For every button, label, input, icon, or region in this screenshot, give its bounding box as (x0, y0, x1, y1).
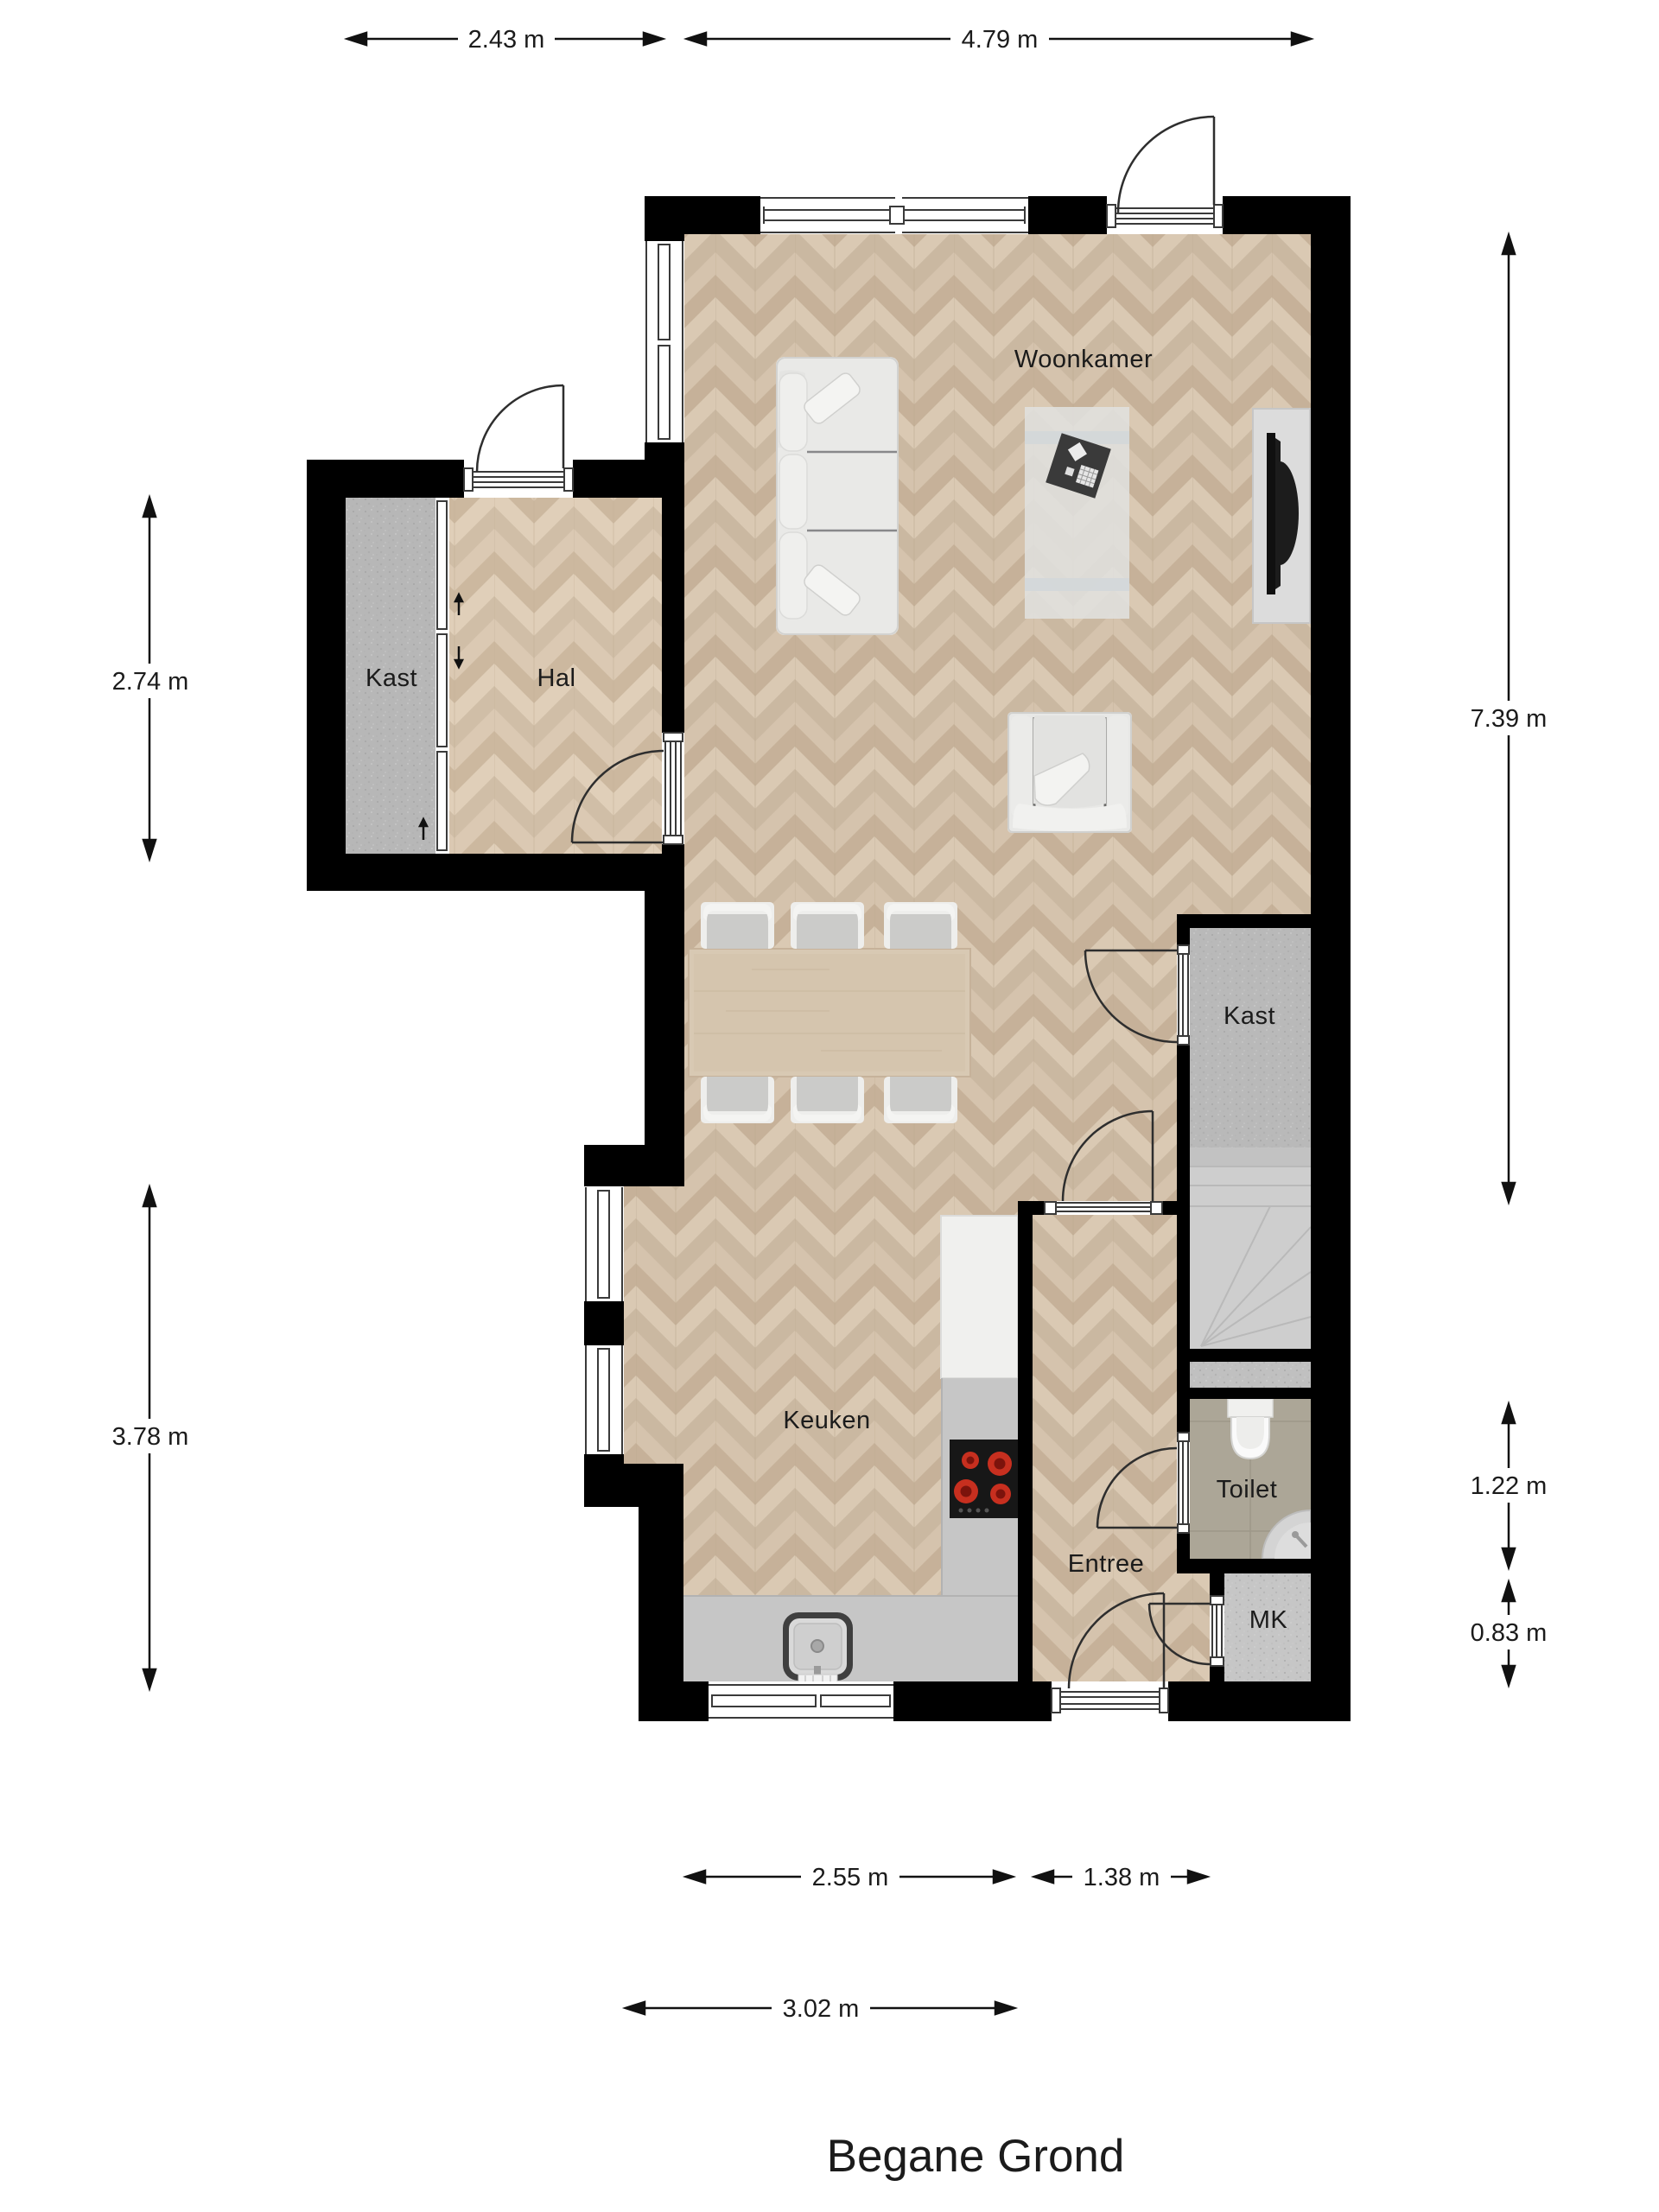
svg-text:3.78 m: 3.78 m (112, 1423, 189, 1451)
svg-text:MK: MK (1249, 1606, 1288, 1634)
svg-text:Kast: Kast (365, 664, 417, 692)
svg-text:Entree: Entree (1068, 1550, 1144, 1578)
svg-text:2.74 m: 2.74 m (112, 668, 189, 696)
svg-text:Toilet: Toilet (1217, 1476, 1278, 1503)
svg-text:Keuken: Keuken (783, 1407, 870, 1434)
svg-text:Woonkamer: Woonkamer (1014, 346, 1153, 373)
svg-text:3.02 m: 3.02 m (783, 1995, 860, 2023)
svg-text:2.55 m: 2.55 m (812, 1864, 889, 1891)
svg-text:2.43 m: 2.43 m (468, 26, 545, 54)
svg-text:0.83 m: 0.83 m (1471, 1619, 1548, 1647)
svg-text:Kast: Kast (1224, 1002, 1275, 1030)
svg-text:1.38 m: 1.38 m (1084, 1864, 1160, 1891)
svg-text:1.22 m: 1.22 m (1471, 1472, 1548, 1500)
svg-text:Hal: Hal (537, 664, 575, 692)
svg-text:4.79 m: 4.79 m (962, 26, 1039, 54)
svg-text:Begane Grond: Begane Grond (827, 2131, 1125, 2182)
svg-text:7.39 m: 7.39 m (1471, 705, 1548, 733)
